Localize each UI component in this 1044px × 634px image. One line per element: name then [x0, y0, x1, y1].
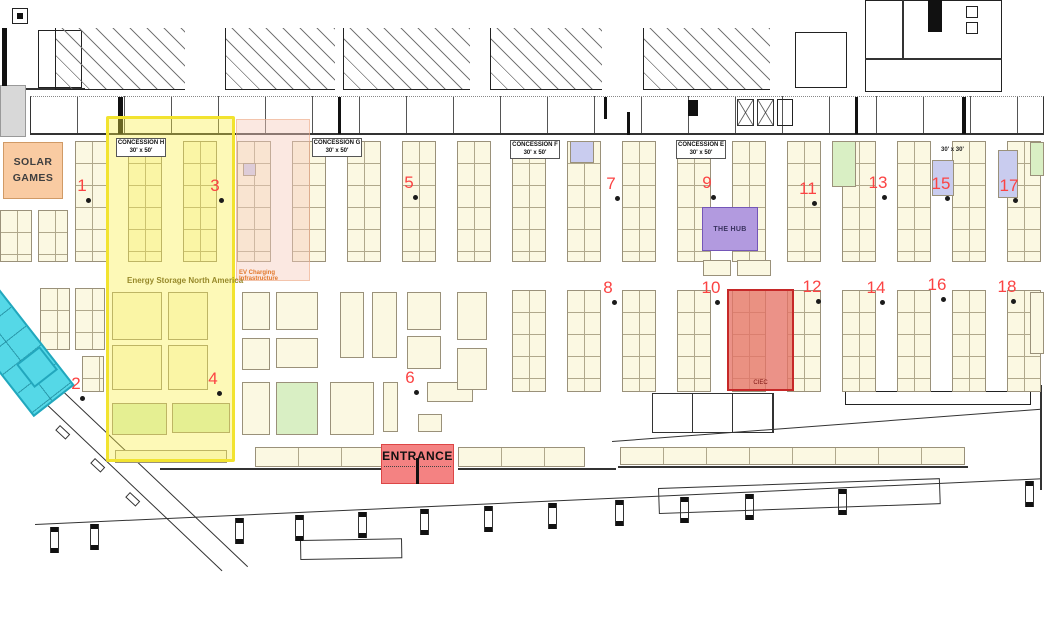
marker-dot: [882, 195, 887, 200]
marker-dot: [812, 201, 817, 206]
marker-dot: [941, 297, 946, 302]
concession-label: CONCESSION G30' x 50': [312, 138, 362, 157]
marker-number: 17: [1000, 176, 1019, 196]
marker-number: 1: [77, 176, 86, 196]
concession-name: CONCESSION G: [313, 140, 361, 148]
marker-dot: [612, 300, 617, 305]
marker-number: 2: [71, 374, 80, 394]
concession-size: 30' x 50': [511, 150, 559, 158]
concession-label: CONCESSION H30' x 50': [116, 138, 166, 157]
marker-number: 15: [932, 174, 951, 194]
marker-number: 16: [928, 275, 947, 295]
exhibit-hall-floorplan: THE HUB CIEC ENTRANCE SOLAR GAMES Energy…: [0, 0, 1044, 634]
marker-number: 3: [210, 176, 219, 196]
marker-dot: [414, 390, 419, 395]
concession-label: CONCESSION F30' x 50': [510, 140, 560, 159]
marker-number: 9: [702, 173, 711, 193]
markers-layer: CONCESSION H30' x 50'CONCESSION G30' x 5…: [0, 0, 1044, 634]
marker-dot: [615, 196, 620, 201]
marker-number: 5: [404, 173, 413, 193]
marker-number: 7: [606, 174, 615, 194]
marker-number: 11: [799, 179, 817, 199]
marker-dot: [86, 198, 91, 203]
marker-dot: [715, 300, 720, 305]
marker-dot: [1011, 299, 1016, 304]
concession-size: 30' x 50': [117, 148, 165, 156]
marker-number: 6: [405, 368, 414, 388]
marker-dot: [945, 196, 950, 201]
marker-number: 4: [208, 369, 217, 389]
marker-dot: [816, 299, 821, 304]
concession-size: 30' x 50': [313, 148, 361, 156]
marker-dot: [711, 195, 716, 200]
marker-dot: [413, 195, 418, 200]
concession-name: CONCESSION H: [117, 140, 165, 148]
marker-number: 10: [702, 278, 721, 298]
marker-number: 13: [869, 173, 888, 193]
marker-dot: [1013, 198, 1018, 203]
concession-size: 30' x 50': [677, 150, 725, 158]
marker-number: 8: [603, 278, 612, 298]
concession-label: CONCESSION E30' x 50': [676, 140, 726, 159]
concession-name: CONCESSION E: [677, 142, 725, 150]
marker-number: 14: [867, 278, 886, 298]
marker-number: 12: [803, 277, 822, 297]
marker-dot: [80, 396, 85, 401]
marker-dot: [219, 198, 224, 203]
marker-dot: [217, 391, 222, 396]
marker-number: 18: [998, 277, 1017, 297]
marker-dot: [880, 300, 885, 305]
concession-name: CONCESSION F: [511, 142, 559, 150]
